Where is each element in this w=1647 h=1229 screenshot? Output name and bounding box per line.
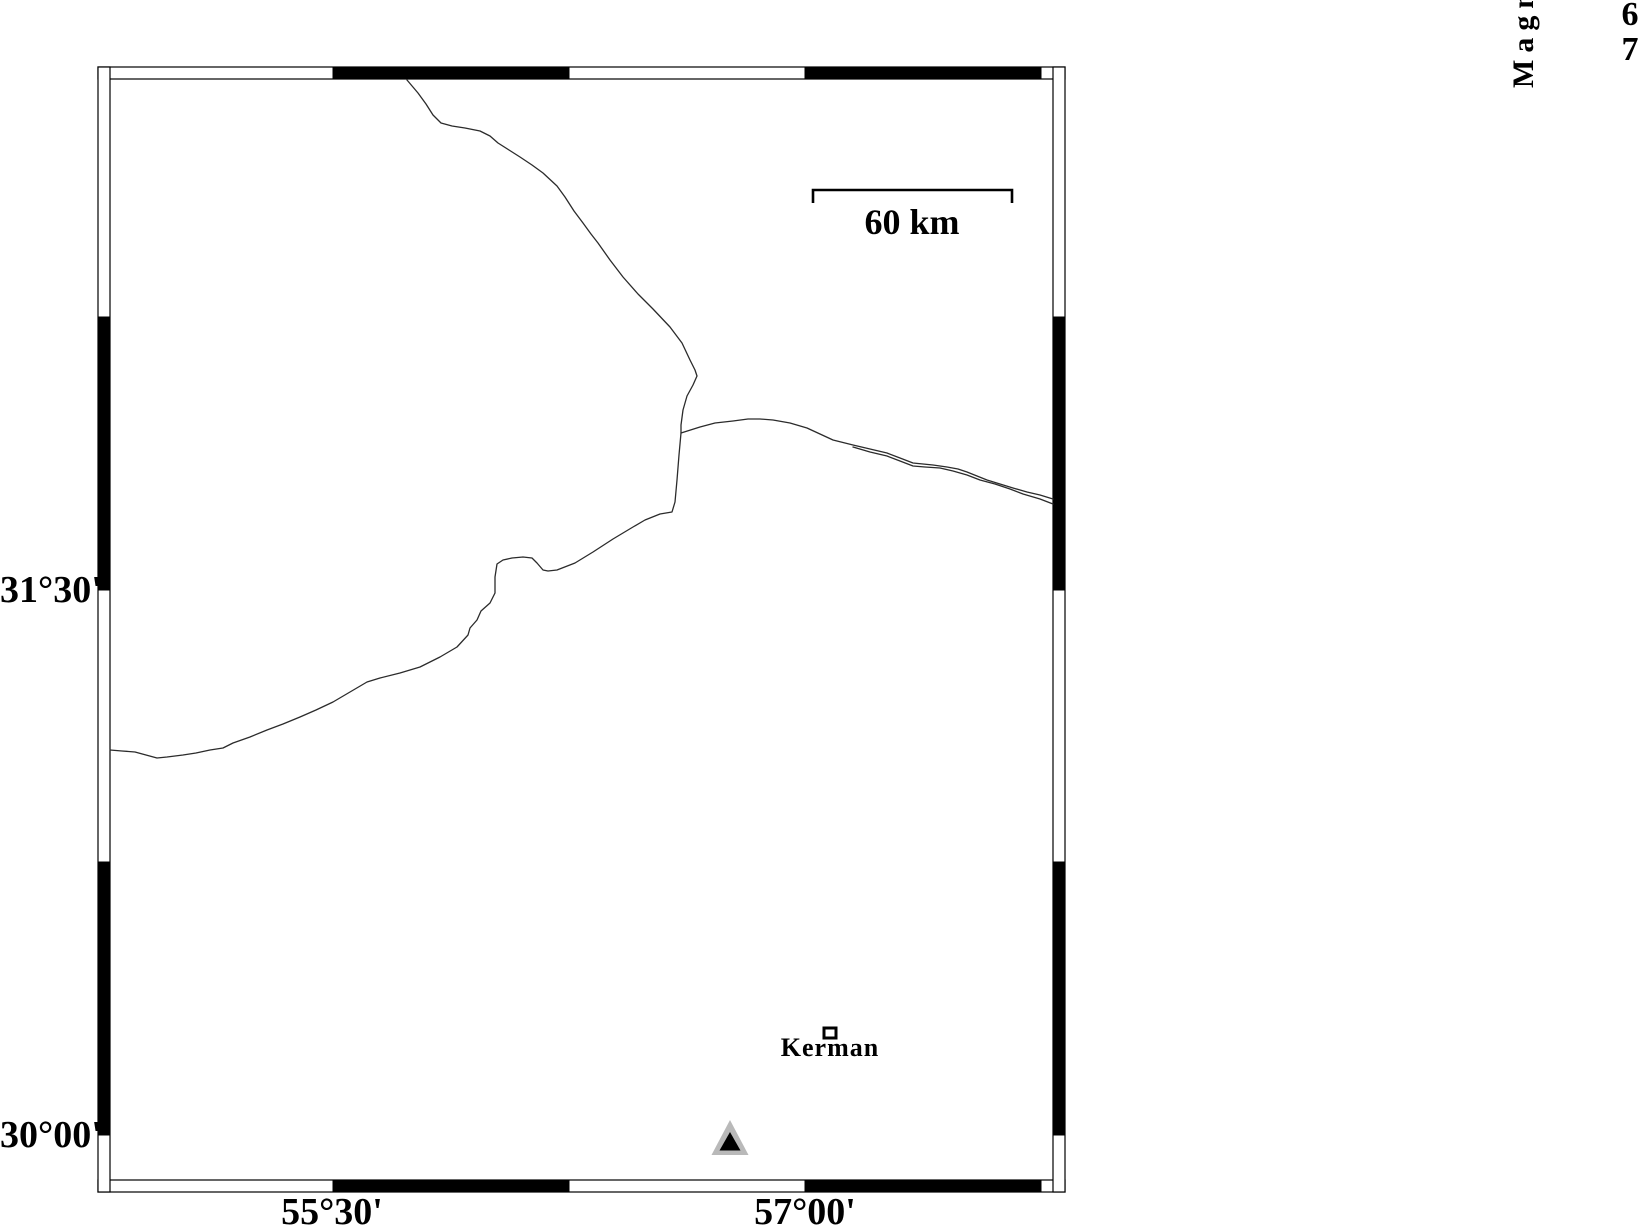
city-label-kerman: Kerman bbox=[730, 1035, 930, 1061]
frame-tick-segment bbox=[98, 862, 110, 1135]
road-line-north bbox=[110, 80, 697, 758]
legend-title-magnitude: Magnitude bbox=[1506, 0, 1542, 88]
lon-label-57-00: 57°00' bbox=[705, 1192, 905, 1229]
road-line-east-lower bbox=[853, 447, 1053, 504]
lat-label-30-00: 30°00' bbox=[0, 1110, 88, 1160]
frame-tick-segment bbox=[1053, 317, 1065, 590]
lat-label-31-30: 31°30' bbox=[0, 565, 88, 615]
legend-magnitude-6: 6 bbox=[1610, 0, 1647, 32]
frame-tick-segment bbox=[805, 67, 1041, 79]
road-line-east-upper bbox=[681, 419, 1053, 499]
frame-tick-segment bbox=[98, 317, 110, 590]
scale-bar-label: 60 km bbox=[812, 202, 1012, 242]
map-page: 31°30' 30°00' 55°30' 57°00' 60 km Kerman… bbox=[0, 0, 1647, 1229]
lon-label-55-30: 55°30' bbox=[232, 1192, 432, 1229]
road-lines bbox=[110, 80, 1053, 758]
triangle-marker bbox=[712, 1120, 749, 1155]
frame-tick-segment bbox=[333, 67, 569, 79]
legend-magnitude-7: 7 bbox=[1610, 33, 1647, 67]
frame-tick-segment bbox=[1053, 862, 1065, 1135]
